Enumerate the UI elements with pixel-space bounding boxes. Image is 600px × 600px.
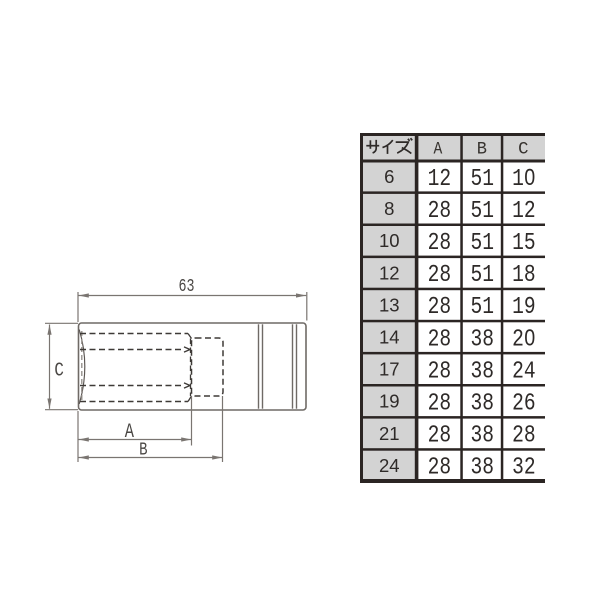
svg-text:15: 15 — [512, 230, 536, 257]
svg-text:38: 38 — [471, 423, 495, 450]
svg-text:21: 21 — [379, 423, 400, 444]
svg-text:10: 10 — [379, 230, 400, 251]
svg-text:38: 38 — [471, 455, 495, 482]
svg-text:28: 28 — [428, 423, 452, 450]
svg-text:20: 20 — [512, 326, 536, 353]
svg-text:19: 19 — [512, 294, 536, 321]
svg-text:38: 38 — [471, 326, 495, 353]
svg-text:A: A — [434, 141, 443, 160]
svg-text:12: 12 — [379, 262, 400, 283]
svg-text:38: 38 — [471, 358, 495, 385]
svg-text:12: 12 — [512, 198, 536, 225]
svg-text:38: 38 — [471, 391, 495, 418]
svg-text:28: 28 — [428, 326, 452, 353]
svg-text:51: 51 — [471, 262, 495, 289]
svg-text:28: 28 — [428, 198, 452, 225]
svg-text:32: 32 — [512, 455, 536, 482]
svg-text:14: 14 — [379, 327, 400, 348]
svg-text:13: 13 — [379, 294, 400, 315]
svg-text:8: 8 — [384, 198, 394, 219]
svg-text:26: 26 — [512, 391, 536, 418]
svg-text:C: C — [54, 359, 64, 381]
svg-text:51: 51 — [471, 198, 495, 225]
svg-text:C: C — [518, 141, 528, 160]
svg-text:18: 18 — [512, 262, 536, 289]
svg-text:24: 24 — [512, 358, 536, 385]
svg-text:28: 28 — [512, 423, 536, 450]
svg-text:6: 6 — [384, 166, 394, 187]
svg-text:17: 17 — [379, 359, 400, 380]
svg-text:28: 28 — [428, 358, 452, 385]
svg-text:28: 28 — [428, 230, 452, 257]
svg-text:28: 28 — [428, 262, 452, 289]
svg-text:28: 28 — [428, 455, 452, 482]
svg-text:51: 51 — [471, 294, 495, 321]
svg-text:63: 63 — [179, 277, 195, 297]
svg-text:B: B — [477, 141, 487, 160]
svg-text:24: 24 — [379, 455, 400, 476]
svg-text:12: 12 — [428, 166, 452, 193]
svg-text:B: B — [139, 441, 148, 461]
svg-text:51: 51 — [471, 166, 495, 193]
svg-text:19: 19 — [379, 391, 400, 412]
svg-text:51: 51 — [471, 230, 495, 257]
svg-text:A: A — [125, 421, 134, 444]
svg-text:10: 10 — [512, 166, 536, 193]
svg-text:28: 28 — [428, 294, 452, 321]
svg-text:28: 28 — [428, 391, 452, 418]
